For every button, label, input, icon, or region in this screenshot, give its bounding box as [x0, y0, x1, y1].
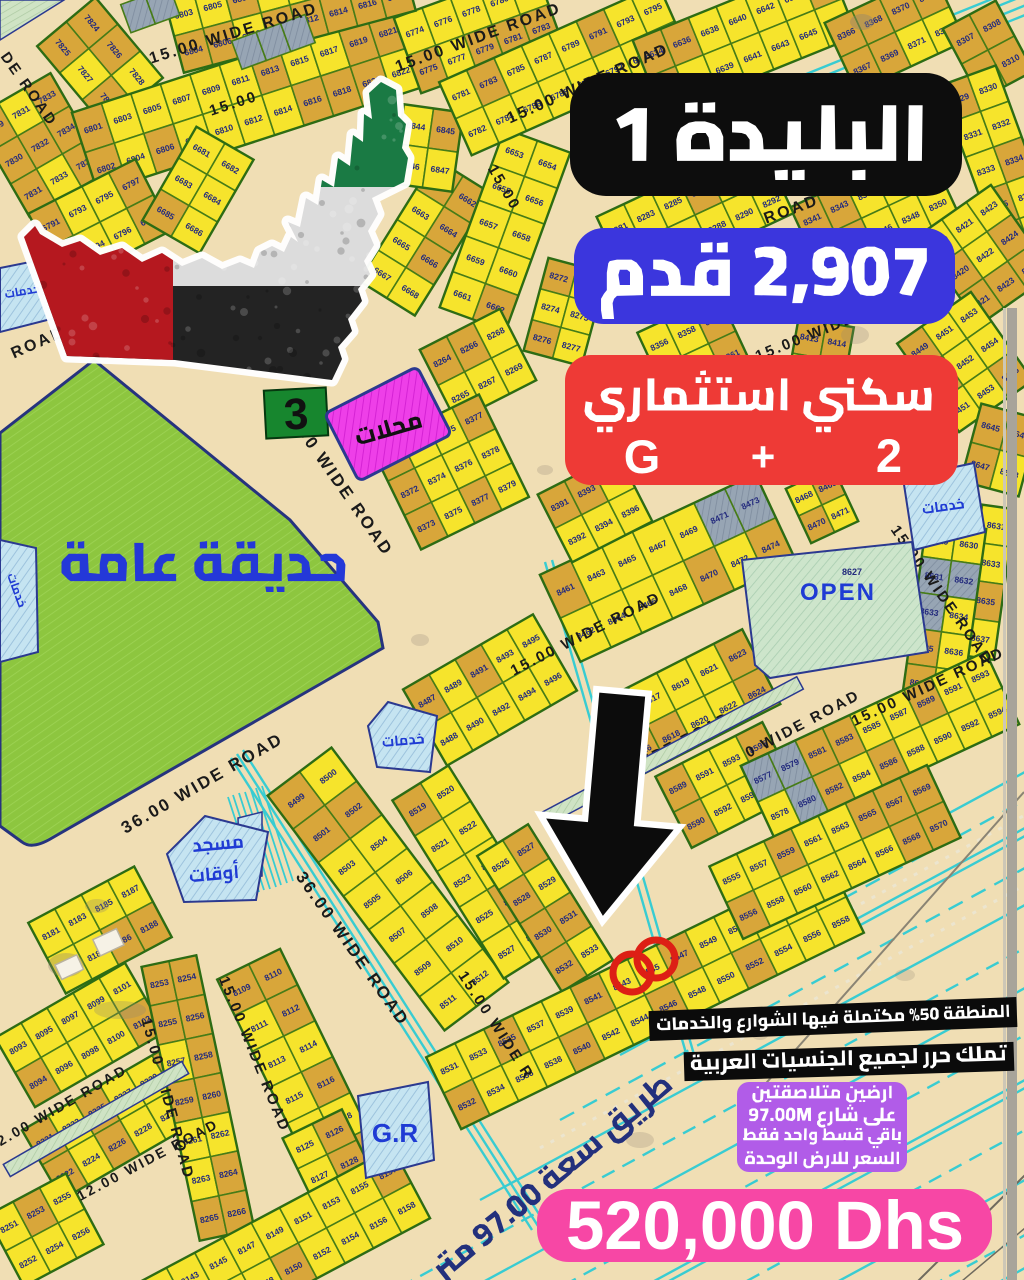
svg-text:OPEN: OPEN: [800, 579, 876, 606]
svg-text:+: +: [751, 433, 776, 480]
svg-text:G: G: [624, 430, 661, 483]
svg-text:3: 3: [283, 389, 310, 439]
svg-text:2: 2: [876, 429, 902, 482]
svg-text:520,000 Dhs: 520,000 Dhs: [566, 1187, 964, 1264]
svg-text:8627: 8627: [842, 567, 862, 577]
svg-text:G.R: G.R: [372, 1118, 418, 1148]
